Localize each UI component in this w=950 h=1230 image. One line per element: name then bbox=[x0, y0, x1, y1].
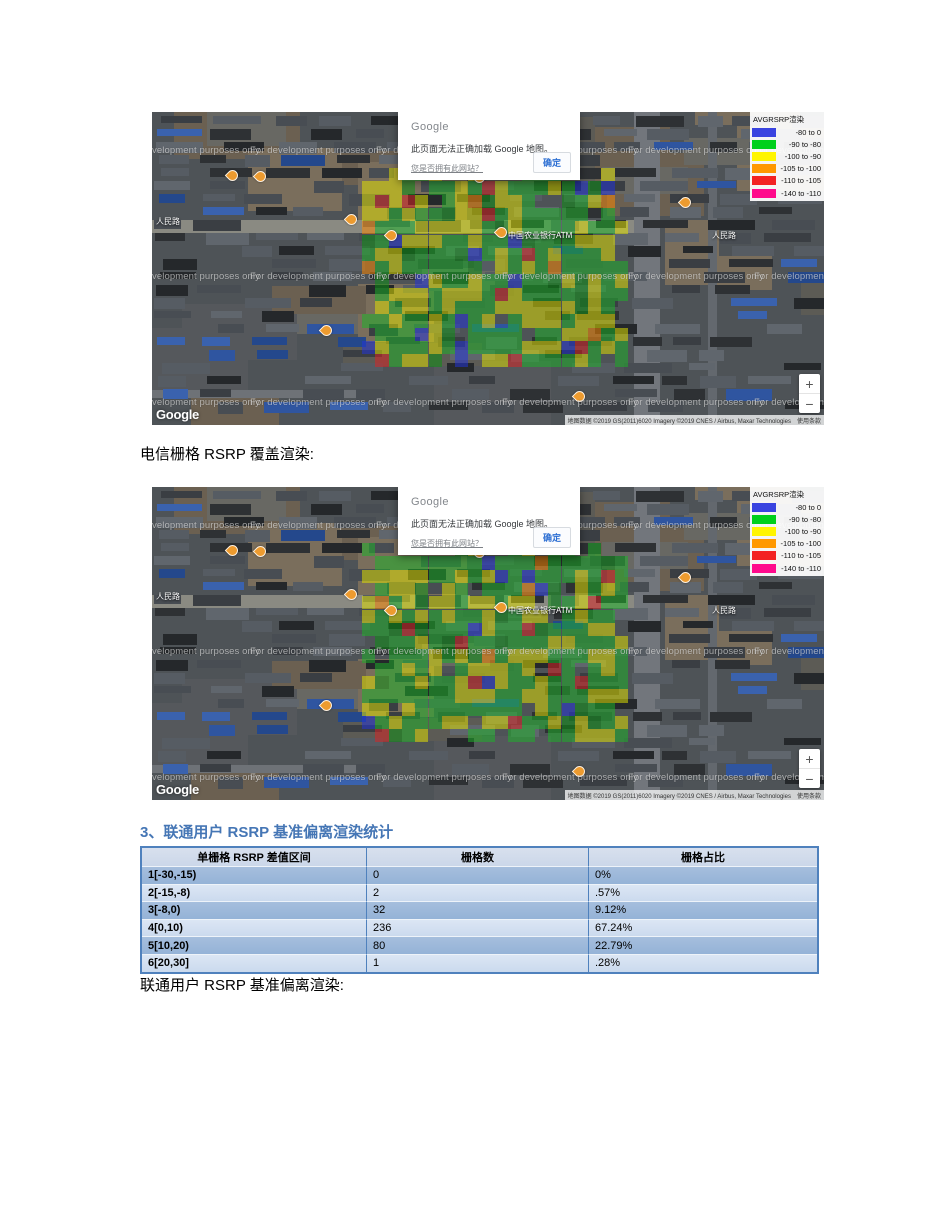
map2-caption: 电信栅格 RSRP 覆盖渲染: bbox=[140, 445, 314, 465]
legend-color-swatch bbox=[752, 176, 776, 185]
col-header-range: 单栅格 RSRP 差值区间 bbox=[142, 848, 367, 867]
attribution-text: 地图数据 ©2019 GS(2011)6020 Imagery ©2019 CN… bbox=[568, 791, 791, 800]
zoom-out-button[interactable]: − bbox=[799, 768, 820, 788]
map-poi-label: 人民路 bbox=[156, 591, 180, 602]
dev-purposes-watermark: For development purposes only bbox=[376, 772, 512, 783]
google-maps-error-dialog: Google 此页面无法正确加载 Google 地图。 您是否拥有此网站？ 确定 bbox=[398, 112, 580, 180]
dev-purposes-watermark: For development purposes only bbox=[250, 520, 386, 531]
legend-title: AVGRSRP渲染 bbox=[753, 489, 822, 500]
rsrp-legend: AVGRSRP渲染 -80 to 0 -90 to -80 -100 to -9… bbox=[750, 487, 824, 576]
legend-row: -105 to -100 bbox=[752, 538, 822, 550]
dev-purposes-watermark: For development purposes only bbox=[152, 520, 260, 531]
google-logo-text: Google bbox=[411, 121, 449, 133]
dev-purposes-watermark: For development purposes only bbox=[376, 271, 512, 282]
dev-purposes-watermark: For development purposes only bbox=[250, 646, 386, 657]
legend-row: -110 to -105 bbox=[752, 175, 822, 187]
legend-color-swatch bbox=[752, 551, 776, 560]
map-attribution: 地图数据 ©2019 GS(2011)6020 Imagery ©2019 CN… bbox=[565, 790, 824, 800]
legend-row: -105 to -100 bbox=[752, 163, 822, 175]
legend-color-swatch bbox=[752, 164, 776, 173]
map-poi-label: 人民路 bbox=[156, 216, 180, 227]
map-zoom-control: + − bbox=[799, 749, 820, 788]
dialog-ok-button[interactable]: 确定 bbox=[533, 152, 571, 173]
google-logo-text: Google bbox=[411, 496, 449, 508]
dev-purposes-watermark: For development purposes only bbox=[250, 772, 386, 783]
dev-purposes-watermark: For development purposes only bbox=[502, 772, 638, 783]
dev-purposes-watermark: For development purposes only bbox=[152, 271, 260, 282]
dev-purposes-watermark: For development purposes only bbox=[152, 646, 260, 657]
table-row: 5[10,20) 80 22.79% bbox=[142, 937, 817, 955]
dev-purposes-watermark: For development purposes only bbox=[628, 271, 764, 282]
zoom-in-button[interactable]: + bbox=[799, 374, 820, 393]
legend-title: AVGRSRP渲染 bbox=[753, 114, 822, 125]
legend-row: -80 to 0 bbox=[752, 126, 822, 138]
legend-color-swatch bbox=[752, 189, 776, 198]
dev-purposes-watermark: For development purposes only bbox=[250, 397, 386, 408]
map-screenshot-1[interactable]: 人民路中国农业银行ATM人民路 For development purposes… bbox=[152, 112, 824, 425]
legend-row: -110 to -105 bbox=[752, 550, 822, 562]
map-poi-label: 中国农业银行ATM bbox=[508, 230, 572, 241]
section-heading: 3、联通用户 RSRP 基准偏离渲染统计 bbox=[140, 823, 393, 843]
table-row: 3[-8,0) 32 9.12% bbox=[142, 902, 817, 920]
dialog-owner-link[interactable]: 您是否拥有此网站？ bbox=[411, 538, 483, 549]
map-poi-label: 中国农业银行ATM bbox=[508, 605, 572, 616]
legend-row: -100 to -90 bbox=[752, 525, 822, 537]
dev-purposes-watermark: For development purposes only bbox=[502, 397, 638, 408]
legend-color-swatch bbox=[752, 539, 776, 548]
col-header-count: 栅格数 bbox=[367, 848, 589, 867]
google-maps-error-dialog: Google 此页面无法正确加载 Google 地图。 您是否拥有此网站？ 确定 bbox=[398, 487, 580, 555]
zoom-out-button[interactable]: − bbox=[799, 393, 820, 413]
legend-color-swatch bbox=[752, 503, 776, 512]
terms-of-use-link[interactable]: 使用条款 bbox=[797, 791, 821, 800]
map-poi-label: 人民路 bbox=[712, 605, 736, 616]
attribution-text: 地图数据 ©2019 GS(2011)6020 Imagery ©2019 CN… bbox=[568, 416, 791, 425]
dev-purposes-watermark: For development purposes only bbox=[152, 145, 260, 156]
dev-purposes-watermark: For development purposes only bbox=[628, 397, 764, 408]
rsrp-deviation-table: 单栅格 RSRP 差值区间 栅格数 栅格占比 1[-30,-15) 0 0% 2… bbox=[140, 846, 819, 974]
dialog-ok-button[interactable]: 确定 bbox=[533, 527, 571, 548]
legend-row: -140 to -110 bbox=[752, 562, 822, 574]
dev-purposes-watermark: For development purposes only bbox=[754, 271, 824, 282]
rsrp-legend: AVGRSRP渲染 -80 to 0 -90 to -80 -100 to -9… bbox=[750, 112, 824, 201]
dev-purposes-watermark: For development purposes only bbox=[502, 271, 638, 282]
table-row: 1[-30,-15) 0 0% bbox=[142, 867, 817, 885]
dev-purposes-watermark: For development purposes only bbox=[628, 646, 764, 657]
legend-row: -100 to -90 bbox=[752, 150, 822, 162]
legend-color-swatch bbox=[752, 140, 776, 149]
dev-purposes-watermark: For development purposes only bbox=[376, 397, 512, 408]
legend-row: -90 to -80 bbox=[752, 138, 822, 150]
col-header-ratio: 栅格占比 bbox=[589, 848, 817, 867]
dialog-owner-link[interactable]: 您是否拥有此网站？ bbox=[411, 163, 483, 174]
map-attribution: 地图数据 ©2019 GS(2011)6020 Imagery ©2019 CN… bbox=[565, 415, 824, 425]
table-row: 2[-15,-8) 2 .57% bbox=[142, 885, 817, 903]
zoom-in-button[interactable]: + bbox=[799, 749, 820, 768]
legend-color-swatch bbox=[752, 152, 776, 161]
dev-purposes-watermark: For development purposes only bbox=[502, 646, 638, 657]
table-row: 4[0,10) 236 67.24% bbox=[142, 920, 817, 938]
dev-purposes-watermark: For development purposes only bbox=[376, 646, 512, 657]
map-zoom-control: + − bbox=[799, 374, 820, 413]
dev-purposes-watermark: For development purposes only bbox=[754, 646, 824, 657]
dialog-message: 此页面无法正确加载 Google 地图。 bbox=[411, 517, 553, 530]
legend-color-swatch bbox=[752, 515, 776, 524]
map-poi-label: 人民路 bbox=[712, 230, 736, 241]
table-row: 6[20,30] 1 .28% bbox=[142, 955, 817, 972]
google-watermark-logo[interactable]: Google bbox=[156, 782, 199, 797]
table-header-row: 单栅格 RSRP 差值区间 栅格数 栅格占比 bbox=[142, 848, 817, 867]
legend-row: -80 to 0 bbox=[752, 501, 822, 513]
dialog-message: 此页面无法正确加载 Google 地图。 bbox=[411, 142, 553, 155]
map2-caption: 联通用户 RSRP 基准偏离渲染: bbox=[140, 976, 344, 996]
document-page: 人民路中国农业银行ATM人民路 For development purposes… bbox=[0, 0, 950, 1230]
map-screenshot-2[interactable]: 人民路中国农业银行ATM人民路 For development purposes… bbox=[152, 487, 824, 800]
terms-of-use-link[interactable]: 使用条款 bbox=[797, 416, 821, 425]
google-watermark-logo[interactable]: Google bbox=[156, 407, 199, 422]
legend-color-swatch bbox=[752, 128, 776, 137]
legend-row: -140 to -110 bbox=[752, 187, 822, 199]
dev-purposes-watermark: For development purposes only bbox=[628, 520, 764, 531]
dev-purposes-watermark: For development purposes only bbox=[628, 772, 764, 783]
dev-purposes-watermark: For development purposes only bbox=[250, 145, 386, 156]
legend-color-swatch bbox=[752, 527, 776, 536]
legend-color-swatch bbox=[752, 564, 776, 573]
dev-purposes-watermark: For development purposes only bbox=[628, 145, 764, 156]
dev-purposes-watermark: For development purposes only bbox=[250, 271, 386, 282]
legend-row: -90 to -80 bbox=[752, 513, 822, 525]
